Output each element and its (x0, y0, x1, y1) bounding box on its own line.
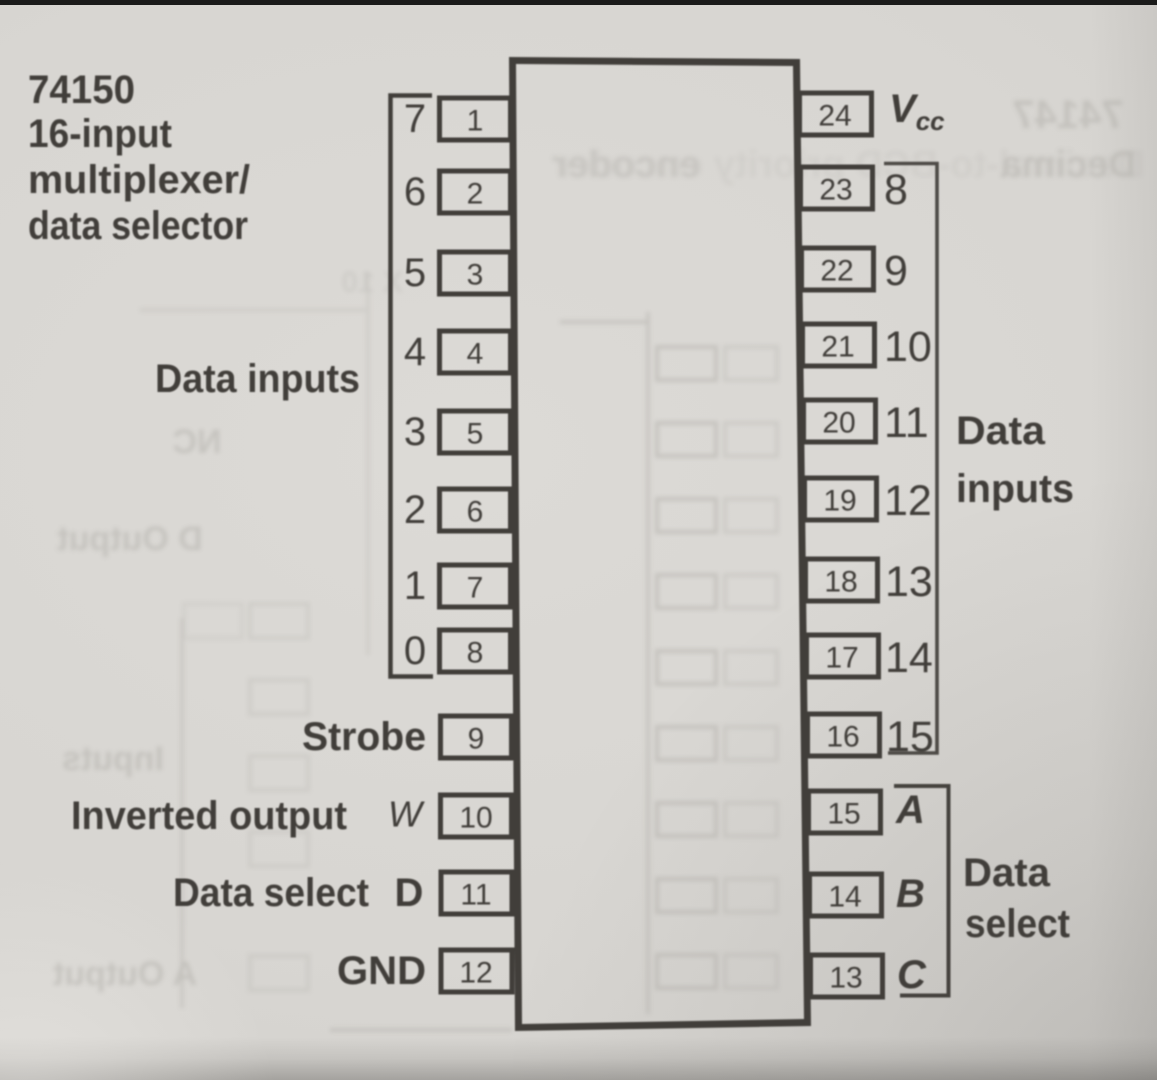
svg-text:8: 8 (884, 166, 908, 214)
svg-text:Data inputs: Data inputs (155, 357, 360, 401)
svg-text:22: 22 (820, 255, 853, 288)
svg-text:A: A (895, 788, 925, 832)
svg-text:9: 9 (468, 723, 485, 756)
svg-text:5: 5 (404, 251, 426, 295)
svg-text:data selector: data selector (28, 204, 248, 248)
svg-text:7: 7 (404, 97, 426, 141)
svg-text:16: 16 (826, 721, 859, 754)
svg-text:74150: 74150 (28, 68, 135, 112)
svg-text:0: 0 (404, 629, 426, 673)
svg-text:6: 6 (404, 170, 426, 214)
svg-text:13: 13 (829, 962, 862, 995)
svg-text:3: 3 (404, 410, 426, 454)
svg-text:14: 14 (828, 881, 861, 914)
svg-text:15: 15 (827, 798, 860, 831)
svg-text:23: 23 (819, 174, 852, 207)
svg-text:20: 20 (822, 407, 855, 440)
svg-text:24: 24 (818, 100, 851, 133)
svg-text:9: 9 (884, 247, 908, 295)
svg-text:14: 14 (885, 634, 933, 682)
svg-text:select: select (965, 902, 1070, 946)
svg-text:multiplexer/: multiplexer/ (28, 158, 250, 202)
svg-text:12: 12 (884, 477, 932, 525)
svg-text:4: 4 (404, 330, 426, 374)
svg-text:C: C (897, 953, 927, 997)
svg-text:16-input: 16-input (28, 112, 172, 156)
svg-text:Data: Data (956, 409, 1046, 453)
svg-text:21: 21 (821, 331, 854, 364)
svg-text:W: W (388, 794, 425, 835)
svg-text:11: 11 (460, 879, 491, 912)
svg-text:13: 13 (885, 558, 933, 606)
svg-text:7: 7 (467, 572, 484, 605)
svg-text:B: B (896, 872, 925, 916)
svg-text:GND: GND (337, 949, 426, 993)
svg-text:2: 2 (404, 488, 426, 532)
svg-text:6: 6 (467, 496, 484, 529)
svg-text:D: D (395, 871, 424, 915)
svg-text:17: 17 (825, 642, 858, 675)
svg-text:1: 1 (404, 564, 426, 608)
svg-text:10: 10 (884, 323, 932, 371)
svg-text:18: 18 (824, 566, 857, 599)
svg-text:Data select: Data select (173, 871, 369, 915)
svg-text:Vcc: Vcc (889, 87, 945, 136)
svg-text:inputs: inputs (956, 467, 1074, 511)
svg-text:3: 3 (467, 259, 484, 292)
svg-text:10: 10 (459, 802, 492, 835)
svg-text:1: 1 (467, 105, 484, 138)
svg-text:Strobe: Strobe (302, 715, 426, 759)
svg-text:4: 4 (467, 338, 484, 371)
svg-text:Inverted output: Inverted output (71, 794, 347, 838)
svg-text:2: 2 (467, 178, 484, 211)
svg-text:19: 19 (823, 485, 856, 518)
svg-text:12: 12 (459, 957, 492, 990)
svg-text:8: 8 (467, 637, 484, 670)
svg-text:11: 11 (884, 399, 929, 447)
svg-text:Data: Data (963, 851, 1051, 895)
svg-text:5: 5 (467, 418, 484, 451)
